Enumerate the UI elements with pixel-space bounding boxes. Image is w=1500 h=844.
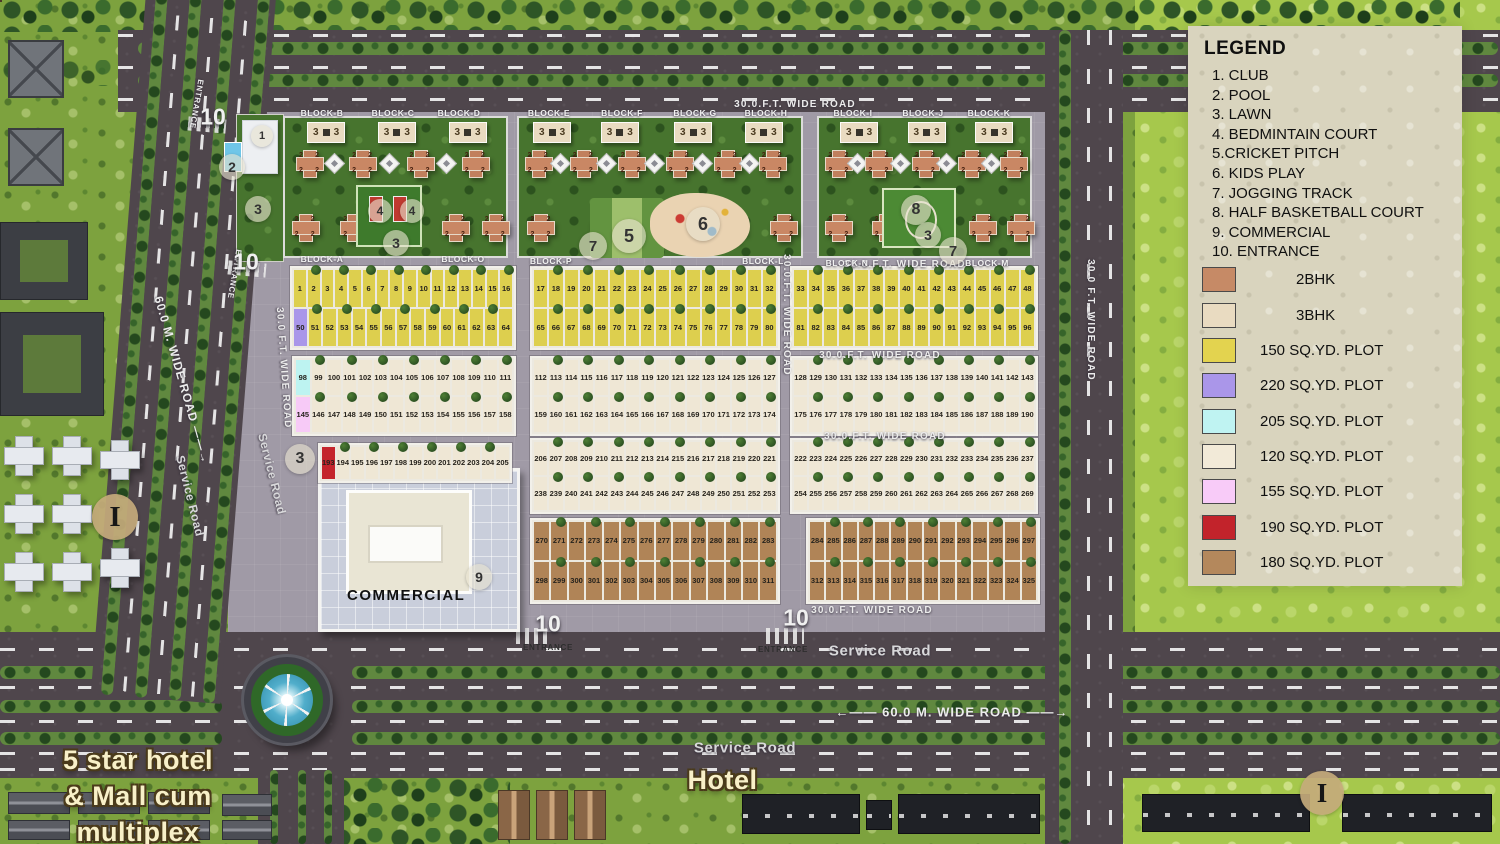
road-label: 30.0.F.T. WIDE ROAD: [824, 432, 946, 442]
plot-304: 304: [639, 562, 654, 600]
2bhk-building: 2222: [1000, 150, 1026, 176]
plot-262: 262: [915, 477, 928, 510]
plot-25: 25: [656, 270, 669, 307]
plot-129: 129: [809, 360, 822, 395]
plot-14: 14: [473, 270, 485, 307]
road-label: BLOCK-D: [438, 109, 481, 118]
plot-146: 146: [312, 397, 326, 432]
2bhk-building: 2222: [825, 214, 851, 240]
plot-154: 154: [436, 397, 450, 432]
plot-120: 120: [656, 360, 669, 395]
plot-283: 283: [760, 522, 775, 560]
legend-swatch-label: 180 SQ.YD. PLOT: [1260, 554, 1383, 571]
legend-swatch-label: 155 SQ.YD. PLOT: [1260, 483, 1383, 500]
plot-158: 158: [499, 397, 513, 432]
plot-284: 284: [810, 522, 824, 560]
2bhk-building: 2222: [714, 150, 740, 176]
plot-316: 316: [875, 562, 889, 600]
plot-155: 155: [452, 397, 466, 432]
plot-110: 110: [483, 360, 497, 395]
marker-3: 3: [245, 196, 271, 222]
plot-187: 187: [976, 397, 989, 432]
plot-241: 241: [580, 477, 593, 510]
plot-106: 106: [421, 360, 435, 395]
plot-252: 252: [748, 477, 761, 510]
plot-20: 20: [580, 270, 593, 307]
plot-232: 232: [945, 442, 958, 475]
legend-swatch-row: 155 SQ.YD. PLOT: [1198, 474, 1454, 509]
plot-194: 194: [337, 447, 350, 479]
plot-79: 79: [748, 309, 761, 346]
plot-190: 190: [1021, 397, 1034, 432]
plot-96: 96: [1021, 309, 1034, 346]
legend-swatch-row: 2BHK: [1198, 262, 1454, 297]
plot-38: 38: [870, 270, 883, 307]
plot-block: 1281291301311321331341351361371381391401…: [790, 356, 1038, 436]
plot-4: 4: [335, 270, 347, 307]
legend-swatch-color: [1202, 550, 1236, 575]
plot-block: 193194195196197198199200201202203204205: [318, 443, 512, 483]
plot-319: 319: [924, 562, 938, 600]
road-label: ENTRANCE: [523, 644, 573, 652]
legend-item: 10. ENTRANCE: [1212, 242, 1454, 262]
legend-swatch-color: [1202, 444, 1236, 469]
plot-205: 205: [496, 447, 509, 479]
plot-159: 159: [534, 397, 547, 432]
3bhk-building: 33: [840, 122, 878, 143]
plot-177: 177: [824, 397, 837, 432]
plot-77: 77: [717, 309, 730, 346]
plot-row: 3123133143153163173183193203213223233243…: [810, 562, 1036, 600]
plot-318: 318: [908, 562, 922, 600]
plot-58: 58: [411, 309, 424, 346]
plot-28: 28: [702, 270, 715, 307]
3bhk-building: 33: [307, 122, 345, 143]
2bhk-building: 2222: [442, 214, 468, 240]
marker-3: 3: [915, 222, 941, 248]
plot-74: 74: [671, 309, 684, 346]
road-label: 30.0.F.T. WIDE ROAD: [811, 606, 933, 616]
plot-93: 93: [976, 309, 989, 346]
marker-9: 9: [466, 564, 492, 590]
plot-101: 101: [343, 360, 357, 395]
plot-266: 266: [976, 477, 989, 510]
road-label: BLOCK-O: [441, 255, 484, 264]
plot-95: 95: [1006, 309, 1019, 346]
plot-311: 311: [760, 562, 775, 600]
plot-261: 261: [900, 477, 913, 510]
road-label: BLOCK-N: [826, 259, 869, 268]
road-label: BLOCK-P: [530, 257, 572, 266]
plot-322: 322: [973, 562, 987, 600]
plot-231: 231: [930, 442, 943, 475]
plot-202: 202: [453, 447, 466, 479]
plot-160: 160: [549, 397, 562, 432]
legend-swatch-label: 3BHK: [1296, 307, 1335, 324]
plot-233: 233: [960, 442, 973, 475]
plot-281: 281: [726, 522, 741, 560]
plot-289: 289: [891, 522, 905, 560]
2bhk-building: 2222: [482, 214, 508, 240]
plot-208: 208: [565, 442, 578, 475]
plot-row: 65666768697071727374757677787980: [534, 309, 776, 346]
plot-3: 3: [322, 270, 334, 307]
marker-4: 4: [400, 199, 424, 223]
plot-308: 308: [708, 562, 723, 600]
road-label: Service Road: [694, 741, 796, 756]
marker-3: 3: [383, 230, 409, 256]
plot-248: 248: [687, 477, 700, 510]
plot-279: 279: [691, 522, 706, 560]
plot-320: 320: [940, 562, 954, 600]
plot-57: 57: [397, 309, 410, 346]
plot-19: 19: [565, 270, 578, 307]
plot-130: 130: [824, 360, 837, 395]
plot-132: 132: [855, 360, 868, 395]
plot-287: 287: [859, 522, 873, 560]
3bhk-building: 33: [378, 122, 416, 143]
plot-block: 9899100101102103104105106107108109110111…: [292, 356, 516, 436]
road-label: BLOCK-B: [301, 109, 344, 118]
plot-row: 2982993003013023033043053063073083093103…: [534, 562, 776, 600]
legend-swatch-row: 190 SQ.YD. PLOT: [1198, 510, 1454, 545]
plot-263: 263: [930, 477, 943, 510]
legend-item: 1. CLUB: [1212, 66, 1454, 86]
plot-64: 64: [499, 309, 512, 346]
plot-199: 199: [409, 447, 422, 479]
plot-75: 75: [687, 309, 700, 346]
plot-171: 171: [717, 397, 730, 432]
legend-swatch-color: [1202, 303, 1236, 328]
plot-136: 136: [915, 360, 928, 395]
plot-298: 298: [534, 562, 549, 600]
2bhk-building: 2222: [969, 214, 995, 240]
plot-row: 193194195196197198199200201202203204205: [322, 447, 508, 479]
plot-114: 114: [565, 360, 578, 395]
plot-271: 271: [551, 522, 566, 560]
plot-134: 134: [885, 360, 898, 395]
plot-row: 2842852862872882892902912922932942952962…: [810, 522, 1036, 560]
legend-swatch-color: [1202, 515, 1236, 540]
plot-row: 1121131141151161171181191201211221231241…: [534, 360, 776, 395]
plot-151: 151: [389, 397, 403, 432]
plot-251: 251: [732, 477, 745, 510]
plot-row: 9899100101102103104105106107108109110111: [296, 360, 512, 395]
plot-218: 218: [717, 442, 730, 475]
legend-item: 5.CRICKET PITCH: [1212, 144, 1454, 164]
plot-203: 203: [467, 447, 480, 479]
plot-260: 260: [885, 477, 898, 510]
road-label: 10: [535, 613, 561, 636]
plot-2: 2: [308, 270, 320, 307]
plot-121: 121: [671, 360, 684, 395]
road-label: BLOCK-I: [834, 109, 873, 118]
plot-161: 161: [565, 397, 578, 432]
legend-item-list: 1. CLUB2. POOL3. LAWN4. BEDMINTAIN COURT…: [1198, 66, 1454, 262]
plot-78: 78: [732, 309, 745, 346]
legend-swatch-row: 3BHK: [1198, 297, 1454, 332]
plot-73: 73: [656, 309, 669, 346]
plot-72: 72: [641, 309, 654, 346]
plot-276: 276: [639, 522, 654, 560]
tower-diamond-building: [435, 153, 456, 174]
legend-swatch-label: 120 SQ.YD. PLOT: [1260, 448, 1383, 465]
plot-18: 18: [549, 270, 562, 307]
plot-row: 17181920212223242526272829303132: [534, 270, 776, 307]
five-star-line2: & Mall cum multiplex: [4, 778, 272, 844]
2bhk-building: 2222: [770, 214, 796, 240]
plot-166: 166: [641, 397, 654, 432]
plot-294: 294: [973, 522, 987, 560]
legend-swatch-label: 190 SQ.YD. PLOT: [1260, 519, 1383, 536]
plot-1: 1: [294, 270, 306, 307]
legend-swatch-list: 2BHK3BHK150 SQ.YD. PLOT220 SQ.YD. PLOT20…: [1198, 262, 1454, 581]
plot-9: 9: [404, 270, 416, 307]
plot-213: 213: [641, 442, 654, 475]
legend-item: 8. HALF BASKETBALL COURT: [1212, 203, 1454, 223]
plot-32: 32: [763, 270, 776, 307]
legend-item: 9. COMMERCIAL: [1212, 223, 1454, 243]
plot-11: 11: [432, 270, 444, 307]
plot-13: 13: [459, 270, 471, 307]
plot-8: 8: [390, 270, 402, 307]
road-label: 10: [233, 251, 259, 274]
tower-diamond-building: [644, 153, 665, 174]
plot-133: 133: [870, 360, 883, 395]
plot-row: 1451461471481491501511521531541551561571…: [296, 397, 512, 432]
plot-280: 280: [708, 522, 723, 560]
plot-82: 82: [809, 309, 822, 346]
plot-65: 65: [534, 309, 547, 346]
plot-135: 135: [900, 360, 913, 395]
2bhk-building: 2222: [666, 150, 692, 176]
plot-67: 67: [565, 309, 578, 346]
plot-62: 62: [470, 309, 483, 346]
plot-186: 186: [960, 397, 973, 432]
plot-70: 70: [610, 309, 623, 346]
plot-43: 43: [945, 270, 958, 307]
plot-131: 131: [839, 360, 852, 395]
plot-235: 235: [991, 442, 1004, 475]
3bhk-building: 33: [449, 122, 487, 143]
plot-row: 1751761771781791801811821831841851861871…: [794, 397, 1034, 432]
plot-307: 307: [691, 562, 706, 600]
plot-269: 269: [1021, 477, 1034, 510]
plot-138: 138: [945, 360, 958, 395]
plot-block: 1718192021222324252627282930313265666768…: [530, 266, 780, 350]
plot-185: 185: [945, 397, 958, 432]
plot-140: 140: [976, 360, 989, 395]
plot-188: 188: [991, 397, 1004, 432]
marker-I: I: [1300, 771, 1344, 815]
hotel-title: Hotel: [655, 762, 790, 798]
plot-block: 3334353637383940414243444546474881828384…: [790, 266, 1038, 350]
plot-63: 63: [485, 309, 498, 346]
tower-diamond-building: [596, 153, 617, 174]
road-label: 30.0.F.T. WIDE ROAD: [781, 254, 791, 376]
plot-268: 268: [1006, 477, 1019, 510]
plot-227: 227: [870, 442, 883, 475]
plot-51: 51: [309, 309, 322, 346]
legend-swatch-row: 180 SQ.YD. PLOT: [1198, 545, 1454, 580]
plot-86: 86: [870, 309, 883, 346]
plot-128: 128: [794, 360, 807, 395]
tower-diamond-building: [692, 153, 713, 174]
plot-89: 89: [915, 309, 928, 346]
road-label: BLOCK-M: [965, 259, 1009, 268]
plot-12: 12: [445, 270, 457, 307]
plot-182: 182: [900, 397, 913, 432]
plot-27: 27: [687, 270, 700, 307]
plot-53: 53: [338, 309, 351, 346]
plot-83: 83: [824, 309, 837, 346]
road-label: BLOCK-F: [601, 109, 643, 118]
plot-214: 214: [656, 442, 669, 475]
plot-258: 258: [855, 477, 868, 510]
plot-290: 290: [908, 522, 922, 560]
plot-59: 59: [426, 309, 439, 346]
legend-swatch-color: [1202, 409, 1236, 434]
plot-40: 40: [900, 270, 913, 307]
plot-118: 118: [626, 360, 639, 395]
five-star-hotel-title: 5 star hotel & Mall cum multiplex: [4, 742, 272, 844]
marker-3: 3: [285, 444, 315, 474]
plot-35: 35: [824, 270, 837, 307]
plot-215: 215: [671, 442, 684, 475]
plot-200: 200: [424, 447, 437, 479]
plot-211: 211: [610, 442, 623, 475]
plot-291: 291: [924, 522, 938, 560]
legend-title: LEGEND: [1204, 38, 1454, 60]
legend-swatch-label: 205 SQ.YD. PLOT: [1260, 413, 1383, 430]
3bhk-building: 33: [908, 122, 946, 143]
plot-46: 46: [991, 270, 1004, 307]
plot-148: 148: [343, 397, 357, 432]
plot-102: 102: [358, 360, 372, 395]
site-plan-map: COMMERCIAL 5 star hotel & Mall cum multi…: [0, 0, 1500, 844]
plot-299: 299: [551, 562, 566, 600]
3bhk-building: 33: [533, 122, 571, 143]
plot-267: 267: [991, 477, 1004, 510]
plot-block: 2702712722732742752762772782792802812822…: [530, 518, 780, 604]
plot-321: 321: [957, 562, 971, 600]
legend-swatch-row: 205 SQ.YD. PLOT: [1198, 404, 1454, 439]
plot-169: 169: [687, 397, 700, 432]
plot-242: 242: [595, 477, 608, 510]
road-label: ENTRANCE: [758, 646, 808, 654]
plot-285: 285: [826, 522, 840, 560]
plot-36: 36: [839, 270, 852, 307]
plot-323: 323: [989, 562, 1003, 600]
plot-296: 296: [1005, 522, 1019, 560]
plot-309: 309: [726, 562, 741, 600]
plot-row: 1281291301311321331341351361371381391401…: [794, 360, 1034, 395]
plot-240: 240: [565, 477, 578, 510]
2bhk-building: 2222: [349, 150, 375, 176]
plot-223: 223: [809, 442, 822, 475]
plot-41: 41: [915, 270, 928, 307]
plot-145: 145: [296, 397, 310, 432]
3bhk-building: 33: [745, 122, 783, 143]
plot-107: 107: [436, 360, 450, 395]
plot-109: 109: [467, 360, 481, 395]
plot-207: 207: [549, 442, 562, 475]
plot-183: 183: [915, 397, 928, 432]
plot-259: 259: [870, 477, 883, 510]
2bhk-building: 2222: [570, 150, 596, 176]
plot-181: 181: [885, 397, 898, 432]
plot-123: 123: [702, 360, 715, 395]
plot-88: 88: [900, 309, 913, 346]
plot-204: 204: [482, 447, 495, 479]
plot-85: 85: [855, 309, 868, 346]
plot-104: 104: [389, 360, 403, 395]
3bhk-building: 33: [601, 122, 639, 143]
legend-item: 4. BEDMINTAIN COURT: [1212, 125, 1454, 145]
plot-108: 108: [452, 360, 466, 395]
plot-42: 42: [930, 270, 943, 307]
3bhk-building: 33: [674, 122, 712, 143]
2bhk-building: 2222: [759, 150, 785, 176]
plot-127: 127: [763, 360, 776, 395]
plot-80: 80: [763, 309, 776, 346]
road-label: BLOCK-H: [745, 109, 788, 118]
road-label: 30.0.F.T. WIDE ROAD: [819, 351, 941, 361]
plot-305: 305: [656, 562, 671, 600]
plot-54: 54: [353, 309, 366, 346]
plot-122: 122: [687, 360, 700, 395]
legend-swatch-row: 220 SQ.YD. PLOT: [1198, 368, 1454, 403]
tower-diamond-building: [324, 153, 345, 174]
plot-238: 238: [534, 477, 547, 510]
plot-117: 117: [610, 360, 623, 395]
legend-swatch-label: 220 SQ.YD. PLOT: [1260, 377, 1383, 394]
plot-164: 164: [610, 397, 623, 432]
plot-196: 196: [366, 447, 379, 479]
plot-288: 288: [875, 522, 889, 560]
plot-143: 143: [1021, 360, 1034, 395]
plot-184: 184: [930, 397, 943, 432]
plot-98: 98: [296, 360, 310, 395]
plot-282: 282: [743, 522, 758, 560]
legend-swatch-color: [1202, 373, 1236, 398]
plot-168: 168: [671, 397, 684, 432]
2bhk-building: 2222: [527, 214, 553, 240]
plot-31: 31: [748, 270, 761, 307]
plot-172: 172: [732, 397, 745, 432]
plot-row: 505152535455565758596061626364: [294, 309, 512, 346]
road-label: BLOCK-J: [902, 109, 943, 118]
legend-swatch-color: [1202, 267, 1236, 292]
plot-66: 66: [549, 309, 562, 346]
plot-236: 236: [1006, 442, 1019, 475]
plot-274: 274: [604, 522, 619, 560]
plot-306: 306: [673, 562, 688, 600]
plot-115: 115: [580, 360, 593, 395]
legend-item: 3. LAWN: [1212, 105, 1454, 125]
plot-219: 219: [732, 442, 745, 475]
plot-278: 278: [673, 522, 688, 560]
plot-293: 293: [957, 522, 971, 560]
plot-246: 246: [656, 477, 669, 510]
road-label: ←—— 60.0 M. WIDE ROAD ——→: [835, 706, 1068, 719]
plot-21: 21: [595, 270, 608, 307]
plot-297: 297: [1022, 522, 1036, 560]
plot-90: 90: [930, 309, 943, 346]
plot-23: 23: [626, 270, 639, 307]
legend-swatch-row: 150 SQ.YD. PLOT: [1198, 333, 1454, 368]
plot-229: 229: [900, 442, 913, 475]
